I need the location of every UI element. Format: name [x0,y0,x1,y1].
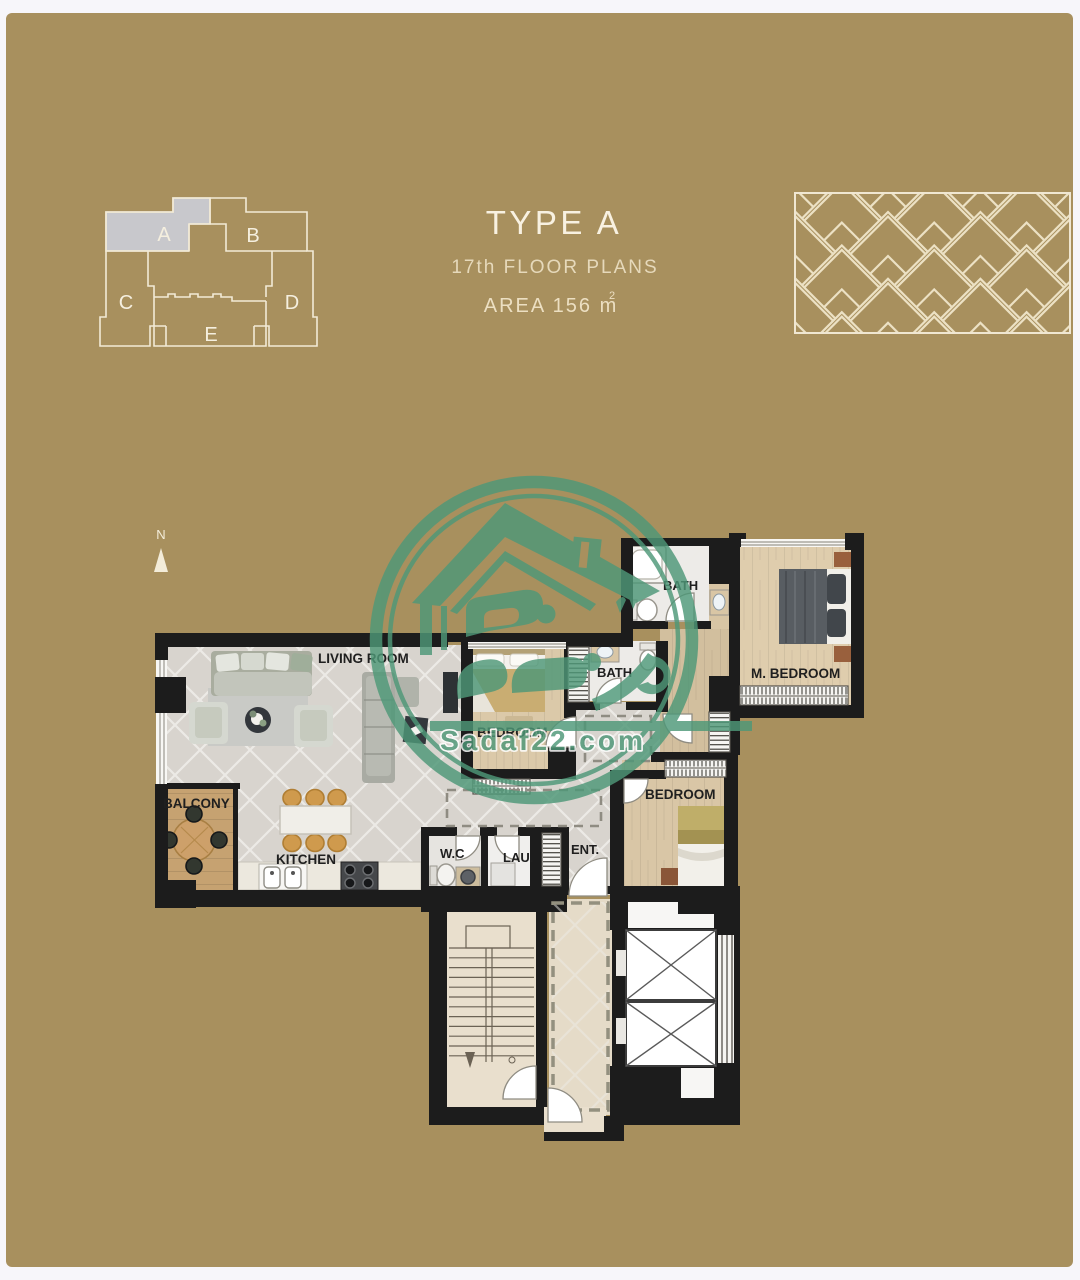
svg-text:C: C [119,292,133,314]
svg-text:AREA 156 m: AREA 156 m [484,295,619,317]
svg-text:W.C: W.C [440,846,465,861]
svg-text:A: A [157,224,171,246]
svg-text:17th FLOOR PLANS: 17th FLOOR PLANS [451,257,658,278]
svg-text:KITCHEN: KITCHEN [276,852,336,867]
svg-text:ENT.: ENT. [571,842,599,857]
svg-text:LAU.: LAU. [503,850,533,865]
svg-text:M. BEDROOM: M. BEDROOM [751,666,840,681]
svg-text:TYPE A: TYPE A [486,204,623,241]
svg-text:LIVING ROOM: LIVING ROOM [318,651,409,666]
svg-text:B: B [246,225,259,247]
svg-text:E: E [204,324,217,346]
svg-text:D: D [285,292,299,314]
svg-text:2: 2 [609,290,615,302]
svg-text:BALCONY: BALCONY [163,796,230,811]
svg-text:BEDROOM: BEDROOM [645,787,716,802]
svg-text:Sadaf22.com: Sadaf22.com [440,725,646,756]
svg-text:N: N [156,527,165,542]
